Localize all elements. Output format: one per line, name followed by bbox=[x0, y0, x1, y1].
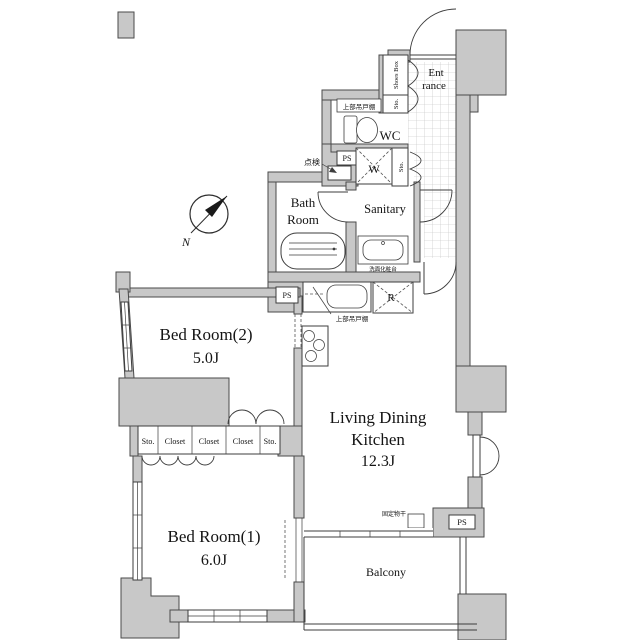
wall-right-stub-lower bbox=[468, 477, 482, 510]
ldk-label-1: Living Dining bbox=[330, 408, 427, 427]
sliding-door-bedroom2-kitchen bbox=[295, 314, 301, 348]
wall-sanitary-bottom bbox=[268, 272, 420, 282]
floorplan-drawing: Ent rance Shoes Box Sto. Sto. WC 上部吊戸棚 P… bbox=[0, 0, 640, 640]
storage-hall-label: Sto. bbox=[398, 161, 405, 172]
compass bbox=[190, 195, 228, 233]
wc-label: WC bbox=[380, 128, 401, 143]
bathtub-drain bbox=[333, 248, 336, 251]
window-bedroom1-bottom bbox=[188, 610, 267, 622]
sanitary-label: Sanitary bbox=[364, 202, 406, 216]
casement-leaf bbox=[473, 435, 480, 477]
closet-label-0: Sto. bbox=[142, 437, 155, 446]
ps-top-label: PS bbox=[343, 154, 352, 163]
fridge-label: R bbox=[387, 292, 395, 304]
washbasin-icon bbox=[358, 236, 408, 264]
wall-bedroom2-ldk bbox=[294, 348, 302, 426]
bathroom-label-1: Bath bbox=[291, 195, 316, 210]
compass-needle-blade bbox=[205, 196, 227, 217]
closet-label-1: Closet bbox=[165, 437, 186, 446]
sliding-panel-dashed bbox=[295, 314, 301, 348]
compass-north-label: N bbox=[181, 235, 191, 249]
casement-swing-arc bbox=[480, 437, 499, 475]
column-mid-right bbox=[456, 366, 506, 412]
closet-label-2: Closet bbox=[199, 437, 220, 446]
bathroom-label-2: Room bbox=[287, 212, 319, 227]
bedroom2-size: 5.0J bbox=[193, 350, 219, 367]
balcony-floor bbox=[304, 537, 458, 624]
wall-right-upper bbox=[456, 95, 470, 366]
wall-stub-top-left bbox=[118, 12, 134, 38]
door-swing-arc bbox=[410, 9, 456, 55]
column-bottom-right bbox=[458, 594, 506, 640]
bedroom1-size: 6.0J bbox=[201, 552, 227, 569]
wall-bath-sanitary-top bbox=[346, 182, 356, 190]
washstand-label: 洗面化粧台 bbox=[369, 265, 397, 273]
closet-label-3: Closet bbox=[233, 437, 254, 446]
closet-label-4: Sto. bbox=[264, 437, 277, 446]
sliding-door-ldk-balcony bbox=[304, 528, 433, 539]
fixed-pole-bracket-box bbox=[408, 514, 424, 528]
washbasin-bowl bbox=[363, 240, 403, 260]
shoes-box-label: Shoes Box bbox=[393, 60, 400, 89]
wall-bath-left bbox=[268, 182, 276, 282]
inspection-label: 点検 bbox=[304, 157, 320, 167]
bedroom2-label: Bed Room(2) bbox=[159, 325, 252, 344]
kitchen-sink bbox=[327, 285, 367, 308]
entrance-door bbox=[410, 9, 456, 59]
ps-kitchen-label: PS bbox=[283, 291, 292, 300]
wall-bedroom1-right-upper bbox=[294, 456, 304, 518]
washer-label: W bbox=[368, 162, 380, 176]
wall-closet-ldk bbox=[278, 426, 302, 456]
casement-window-right bbox=[473, 435, 499, 477]
entrance-label-2: rance bbox=[422, 80, 446, 92]
column-top-right bbox=[456, 30, 506, 95]
kitchen-counter bbox=[303, 282, 371, 314]
bedroom1-label: Bed Room(1) bbox=[167, 527, 260, 546]
wall-bedroom2-top bbox=[124, 288, 300, 297]
fixed-pole-label: 固定物干 bbox=[382, 510, 406, 518]
window-bedroom1-left bbox=[133, 482, 142, 580]
wall-sanitary-hall bbox=[414, 182, 420, 262]
toilet-tank-icon bbox=[344, 116, 357, 143]
entrance-label-1: Ent bbox=[428, 67, 443, 79]
wall-right-stub-upper bbox=[468, 412, 482, 435]
ps-balcony-label: PS bbox=[457, 517, 467, 527]
bathtub-outline bbox=[281, 233, 345, 269]
wall-mass-below-bedroom2 bbox=[119, 378, 229, 426]
floorplan-page: Ent rance Shoes Box Sto. Sto. WC 上部吊戸棚 P… bbox=[0, 0, 640, 640]
storage-entrance-label: Sto. bbox=[393, 98, 400, 109]
wall-closet-left bbox=[130, 426, 138, 456]
upper-cupboard-kitchen-label: 上部吊戸棚 bbox=[336, 314, 369, 323]
ldk-label-2: Kitchen bbox=[351, 430, 405, 449]
wall-bedroom1-right-lower bbox=[294, 582, 304, 622]
toilet-bowl-icon bbox=[357, 118, 378, 143]
balcony-label: Balcony bbox=[366, 565, 406, 579]
upper-cupboard-wc-label: 上部吊戸棚 bbox=[343, 102, 376, 111]
bathtub-icon bbox=[281, 233, 345, 269]
stove-icon bbox=[302, 326, 328, 366]
ldk-size: 12.3J bbox=[361, 453, 395, 470]
